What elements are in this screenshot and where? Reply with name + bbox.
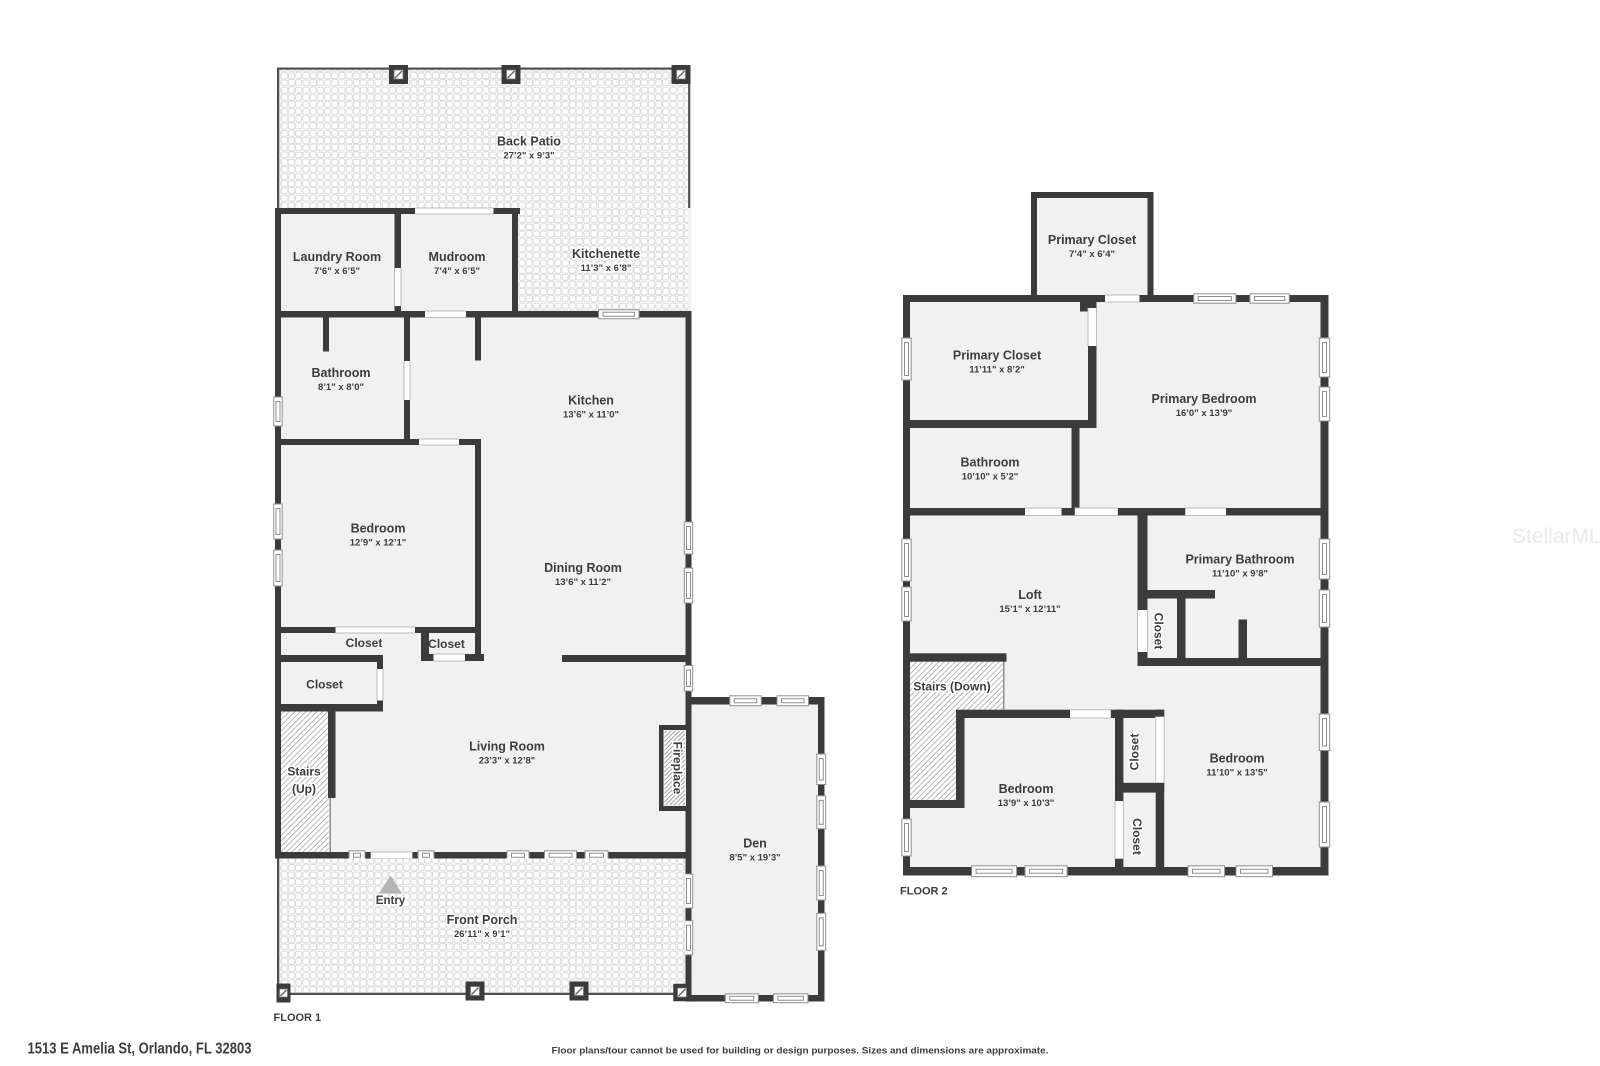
svg-text:13’6" x 11’0": 13’6" x 11’0" (563, 410, 619, 421)
svg-text:8’1" x 8’0": 8’1" x 8’0" (318, 382, 364, 393)
svg-text:Stairs: Stairs (287, 765, 321, 779)
svg-text:(Up): (Up) (292, 782, 316, 796)
svg-text:Entry: Entry (376, 895, 406, 907)
svg-text:Fireplace: Fireplace (671, 742, 685, 795)
svg-text:Closet: Closet (1152, 613, 1166, 650)
svg-text:Front Porch: Front Porch (447, 913, 518, 927)
svg-text:Back Patio: Back Patio (497, 134, 561, 148)
svg-text:Stairs (Down): Stairs (Down) (913, 680, 990, 694)
svg-text:Closet: Closet (346, 636, 383, 650)
svg-text:16’0" x 13’9": 16’0" x 13’9" (1176, 408, 1233, 419)
svg-text:Kitchenette: Kitchenette (572, 247, 640, 261)
svg-text:Bedroom: Bedroom (351, 521, 406, 535)
svg-text:Loft: Loft (1018, 588, 1042, 602)
svg-text:8’5" x 19’3": 8’5" x 19’3" (729, 853, 780, 864)
svg-text:Bedroom: Bedroom (1210, 751, 1265, 765)
svg-text:Floor plans/tour cannot be use: Floor plans/tour cannot be used for buil… (552, 1046, 1049, 1057)
svg-text:11’3" x 6’8": 11’3" x 6’8" (581, 263, 632, 274)
svg-text:11’11" x 8’2": 11’11" x 8’2" (969, 365, 1025, 376)
svg-text:13’9" x 10’3": 13’9" x 10’3" (998, 798, 1055, 809)
svg-text:Dining Room: Dining Room (544, 561, 622, 575)
svg-text:Primary Closet: Primary Closet (1048, 233, 1137, 247)
svg-text:Bathroom: Bathroom (960, 455, 1019, 469)
svg-text:Closet: Closet (1130, 818, 1144, 855)
svg-text:Primary Bathroom: Primary Bathroom (1185, 552, 1294, 566)
svg-text:Kitchen: Kitchen (568, 393, 614, 407)
svg-text:23’3" x 12’8": 23’3" x 12’8" (479, 756, 536, 767)
svg-text:13’6" x 11’2": 13’6" x 11’2" (555, 577, 611, 588)
svg-text:15’1" x 12’11": 15’1" x 12’11" (999, 604, 1060, 615)
svg-text:Closet: Closet (306, 677, 343, 691)
svg-text:Primary Closet: Primary Closet (953, 348, 1042, 362)
svg-text:Living Room: Living Room (469, 739, 545, 753)
svg-text:26’11" x 9’1": 26’11" x 9’1" (454, 929, 510, 940)
svg-text:10’10" x 5’2": 10’10" x 5’2" (962, 472, 1019, 483)
svg-text:Closet: Closet (1128, 734, 1142, 771)
svg-text:Closet: Closet (428, 637, 465, 651)
svg-text:Den: Den (743, 836, 767, 850)
svg-text:FLOOR 1: FLOOR 1 (274, 1012, 322, 1024)
svg-text:1513 E Amelia St, Orlando, FL: 1513 E Amelia St, Orlando, FL 32803 (28, 1041, 252, 1058)
svg-text:11’10" x 9’8": 11’10" x 9’8" (1212, 569, 1268, 580)
svg-text:Laundry Room: Laundry Room (293, 250, 381, 264)
svg-text:FLOOR 2: FLOOR 2 (900, 886, 948, 898)
svg-text:7’4" x 6’5": 7’4" x 6’5" (434, 266, 480, 277)
svg-text:Bedroom: Bedroom (999, 782, 1054, 796)
svg-text:12’9" x 12’1": 12’9" x 12’1" (350, 538, 407, 549)
svg-text:Mudroom: Mudroom (429, 250, 486, 264)
svg-text:27’2" x 9’3": 27’2" x 9’3" (503, 151, 554, 162)
svg-text:Primary Bedroom: Primary Bedroom (1152, 392, 1257, 406)
svg-text:Bathroom: Bathroom (311, 366, 370, 380)
svg-text:11’10" x 13’5": 11’10" x 13’5" (1206, 768, 1267, 779)
svg-text:StellarMLS: StellarMLS (1512, 525, 1600, 548)
svg-text:7’4" x 6’4": 7’4" x 6’4" (1069, 249, 1115, 260)
svg-text:7’6" x 6’5": 7’6" x 6’5" (314, 266, 360, 277)
